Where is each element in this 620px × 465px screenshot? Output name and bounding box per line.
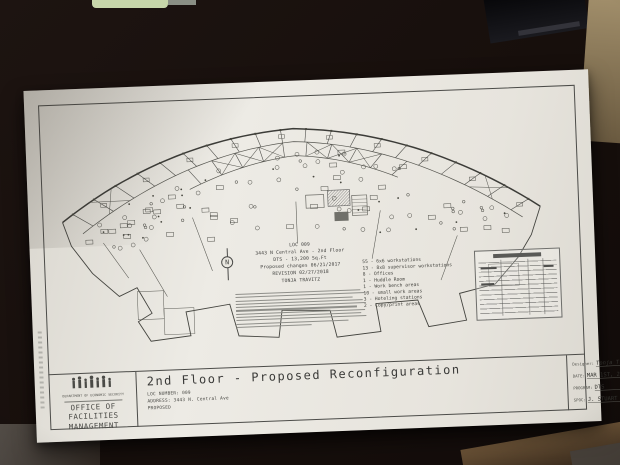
north-arrow-circle: N — [221, 256, 233, 268]
floor-plan-drawing: LOC 009 3443 N Central Ave - 2nd Floor D… — [38, 85, 585, 373]
agency-logo-cell: DEPARTMENT OF ECONOMIC SECURITY OFFICE O… — [48, 372, 138, 430]
plot-stamp-text — [38, 328, 45, 408]
table-cell-bar — [544, 265, 554, 268]
table-header-bar — [493, 252, 542, 258]
shelf-green-object — [92, 0, 168, 8]
workstation-schedule-table — [474, 247, 563, 320]
note-line — [237, 324, 312, 328]
signature-fields-cell: Designer:Tonja Trovitz DATE:MAR 1ST, 201… — [567, 351, 620, 411]
office-line: MANAGEMENT — [50, 420, 137, 433]
north-arrow: N — [220, 248, 235, 281]
floor-plan-sheet: LOC 009 3443 N Central Ave - 2nd Floor D… — [23, 69, 601, 442]
people-logo-icon — [69, 375, 115, 390]
desk-photo: LOC 009 3443 N Central Ave - 2nd Floor D… — [0, 0, 620, 465]
shelf-gray-object — [168, 0, 196, 5]
plan-notes-list — [235, 289, 366, 330]
plan-legend: 55 - 6x6 workstations 13 - 8x8 superviso… — [362, 254, 488, 359]
